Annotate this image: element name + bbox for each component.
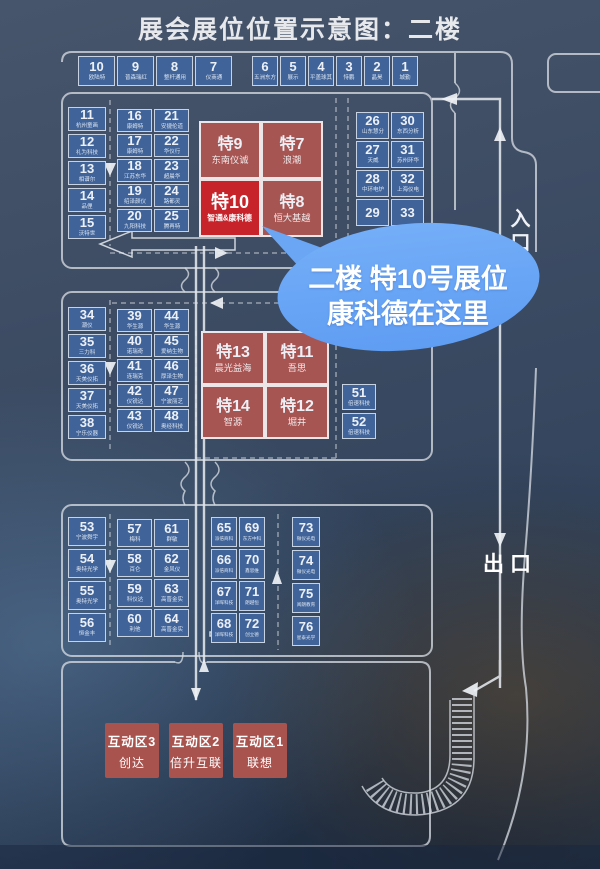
page-title: 展会展位位置示意图：二楼: [0, 10, 600, 46]
exit-label: 出口: [483, 548, 537, 578]
callout-line-1: 二楼 特10号展位: [282, 262, 534, 297]
callout-text: 二楼 特10号展位 康科德在这里: [282, 262, 534, 332]
callout-line-2: 康科德在这里: [282, 297, 534, 332]
floor-map: 展会展位位置示意图：二楼 10欧陆特9普森瑞红8整杆通用7仪商通 6五洲东方5展…: [0, 0, 600, 869]
callout-tail: [0, 0, 600, 869]
